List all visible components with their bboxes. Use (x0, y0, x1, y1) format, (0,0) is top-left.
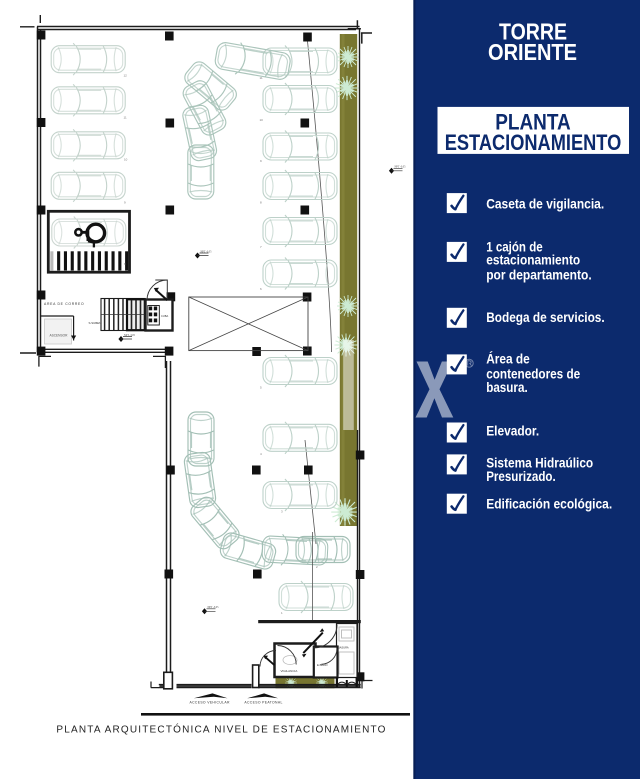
svg-text:Edificación ecológica.: Edificación ecológica. (486, 497, 612, 512)
svg-text:10: 10 (260, 118, 264, 122)
svg-text:ACCESO PEATONAL: ACCESO PEATONAL (244, 701, 282, 705)
svg-text:Caseta de vigilancia.: Caseta de vigilancia. (486, 196, 604, 211)
svg-text:estacionamiento: estacionamiento (486, 253, 580, 268)
svg-text:Bodega de servicios.: Bodega de servicios. (486, 310, 605, 325)
svg-text:ASCENSOR: ASCENSOR (50, 334, 69, 338)
svg-text:ESTACIONAMIENTO: ESTACIONAMIENTO (445, 130, 622, 155)
svg-text:ACCESO VEHICULAR: ACCESO VEHICULAR (190, 701, 230, 705)
svg-text:ORIENTE: ORIENTE (488, 39, 577, 65)
svg-text:CUBA: CUBA (161, 314, 168, 318)
svg-text:11: 11 (260, 76, 263, 80)
svg-text:Presurizado.: Presurizado. (486, 469, 556, 484)
svg-text:11: 11 (124, 116, 127, 120)
svg-text:PLANTA ARQUITECTÓNICA NIVEL DE: PLANTA ARQUITECTÓNICA NIVEL DE ESTACIONA… (56, 723, 385, 736)
svg-text:por departamento.: por departamento. (486, 268, 592, 283)
svg-text:S.SUBEN: S.SUBEN (89, 321, 102, 325)
svg-text:Elevador.: Elevador. (486, 424, 539, 439)
svg-text:AREA DE CORREO: AREA DE CORREO (44, 302, 84, 306)
svg-text:basura.: basura. (486, 380, 528, 395)
svg-text:12: 12 (124, 74, 128, 78)
svg-text:Área de: Área de (486, 352, 530, 367)
svg-text:BASURA: BASURA (338, 646, 349, 650)
svg-text:10: 10 (124, 158, 128, 162)
svg-text:VIGILANCIA: VIGILANCIA (281, 669, 298, 673)
